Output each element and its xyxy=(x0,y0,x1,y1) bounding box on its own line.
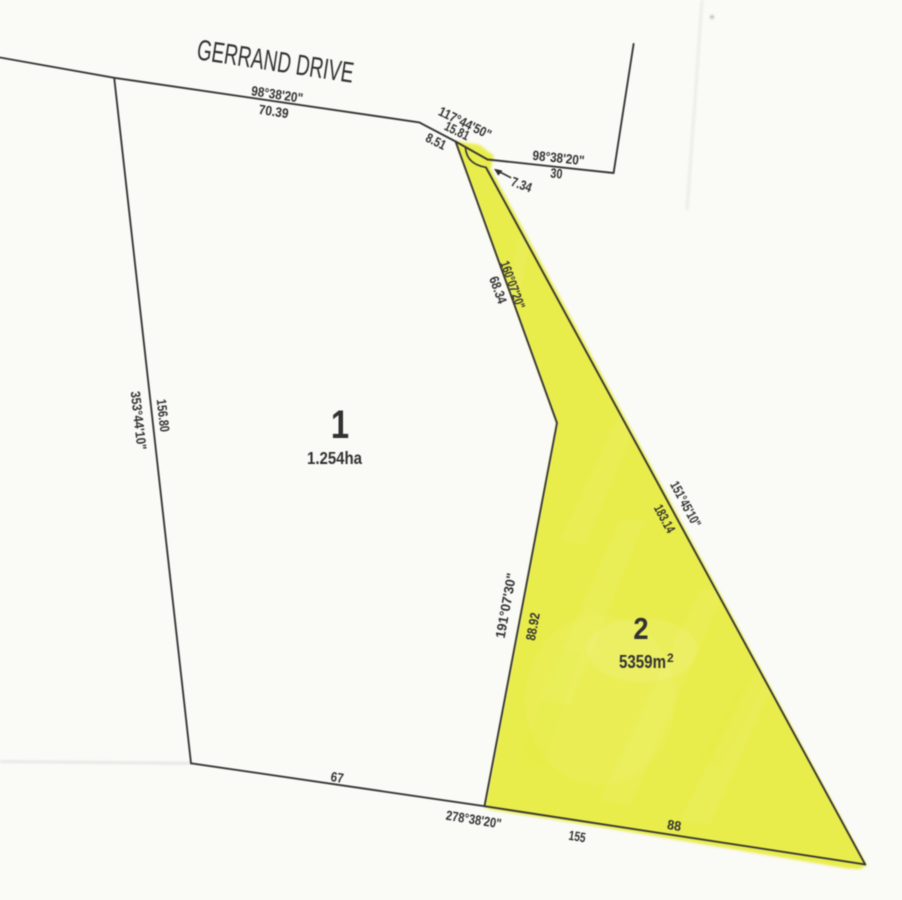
svg-text:30: 30 xyxy=(550,165,564,181)
svg-text:1: 1 xyxy=(331,402,349,447)
svg-text:1.254ha: 1.254ha xyxy=(307,448,362,468)
svg-text:88: 88 xyxy=(666,817,683,834)
svg-text:67: 67 xyxy=(330,769,345,786)
svg-text:2: 2 xyxy=(633,612,648,646)
svg-text:155: 155 xyxy=(568,828,587,846)
svg-text:5359m2: 5359m2 xyxy=(619,651,674,672)
